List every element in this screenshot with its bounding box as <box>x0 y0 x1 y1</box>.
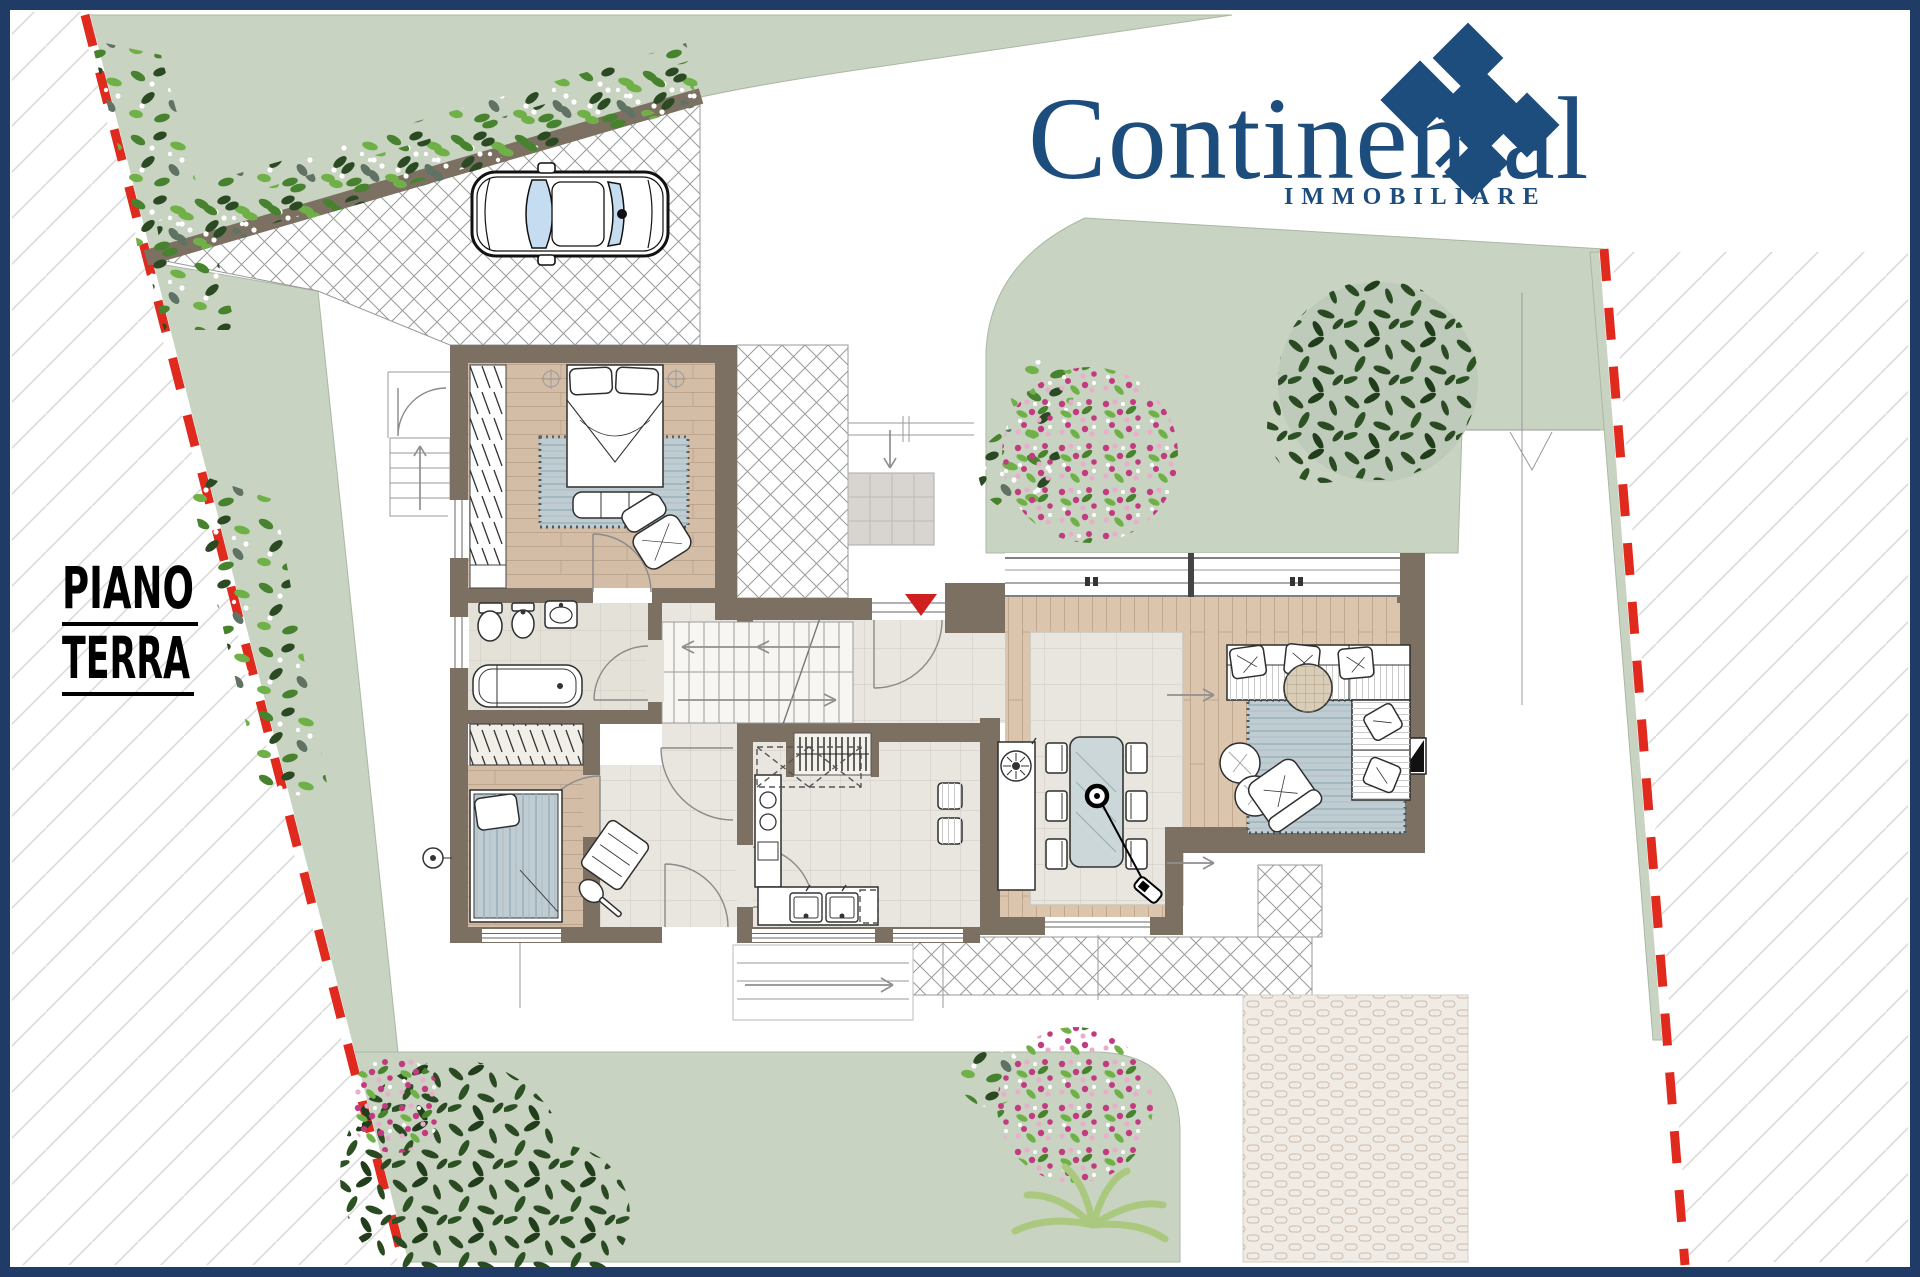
round-side-table <box>1284 664 1332 712</box>
floor-plan-drawing: PIANO TERRA Continental IMMOBILIARE <box>0 0 1920 1277</box>
parked-car <box>472 163 668 265</box>
plan-title-block: PIANO TERRA <box>62 554 198 694</box>
living-window-band <box>1005 553 1400 597</box>
closet-shelving <box>470 724 583 765</box>
washbasin <box>545 601 577 628</box>
terrace-steps <box>733 945 913 1020</box>
toilet <box>478 603 502 641</box>
peninsula-cooktop <box>998 738 1036 890</box>
logo-subtitle: IMMOBILIARE <box>1284 184 1547 210</box>
bathtub <box>473 665 582 707</box>
single-bed <box>470 790 562 922</box>
floor-plan-page: PIANO TERRA Continental IMMOBILIARE <box>0 0 1920 1277</box>
plan-title-line1: PIANO <box>62 554 194 622</box>
kitchen-tall-unit <box>755 775 781 887</box>
wardrobe <box>470 365 506 588</box>
double-bed <box>567 365 663 518</box>
plan-title-line2: TERRA <box>62 624 190 692</box>
bidet <box>512 603 534 638</box>
staircase <box>662 618 853 727</box>
